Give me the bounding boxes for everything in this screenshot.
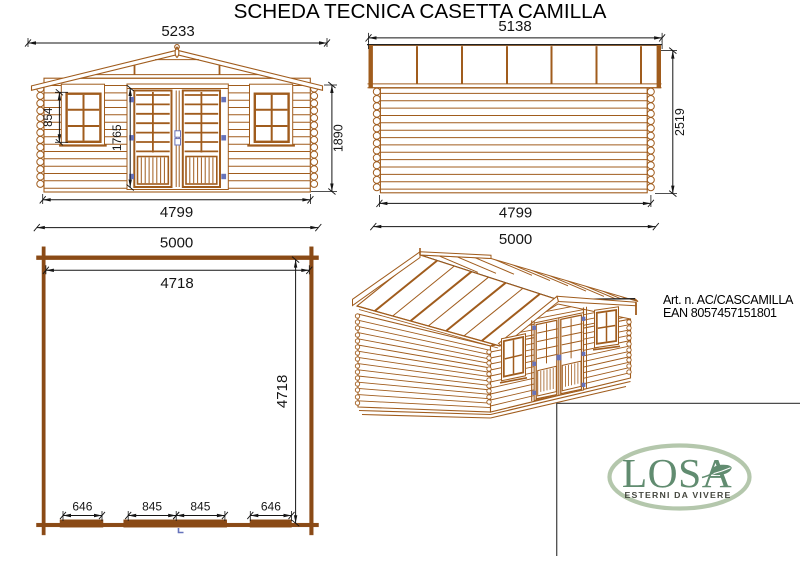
svg-text:845: 845 [190, 500, 210, 514]
svg-text:5000: 5000 [160, 235, 193, 252]
svg-text:854: 854 [43, 107, 55, 127]
svg-text:5233: 5233 [161, 23, 194, 40]
svg-text:Art. n. AC/CASCAMILLA: Art. n. AC/CASCAMILLA [663, 293, 794, 307]
svg-text:4718: 4718 [160, 275, 193, 292]
svg-text:4799: 4799 [160, 204, 193, 221]
svg-text:SCHEDA TECNICA CASETTA CAMILLA: SCHEDA TECNICA CASETTA CAMILLA [234, 0, 607, 23]
svg-text:4799: 4799 [499, 205, 532, 222]
svg-text:1890: 1890 [331, 124, 345, 152]
svg-text:2519: 2519 [673, 108, 687, 136]
svg-text:5000: 5000 [499, 231, 532, 248]
svg-text:1765: 1765 [110, 124, 124, 151]
svg-text:4718: 4718 [274, 375, 291, 408]
svg-text:5138: 5138 [498, 18, 531, 35]
svg-text:EAN 8057457151801: EAN 8057457151801 [663, 306, 777, 320]
svg-text:646: 646 [261, 500, 281, 514]
svg-text:845: 845 [142, 500, 162, 514]
svg-text:646: 646 [72, 500, 92, 514]
svg-text:ESTERNI DA VIVERE: ESTERNI DA VIVERE [625, 490, 732, 500]
